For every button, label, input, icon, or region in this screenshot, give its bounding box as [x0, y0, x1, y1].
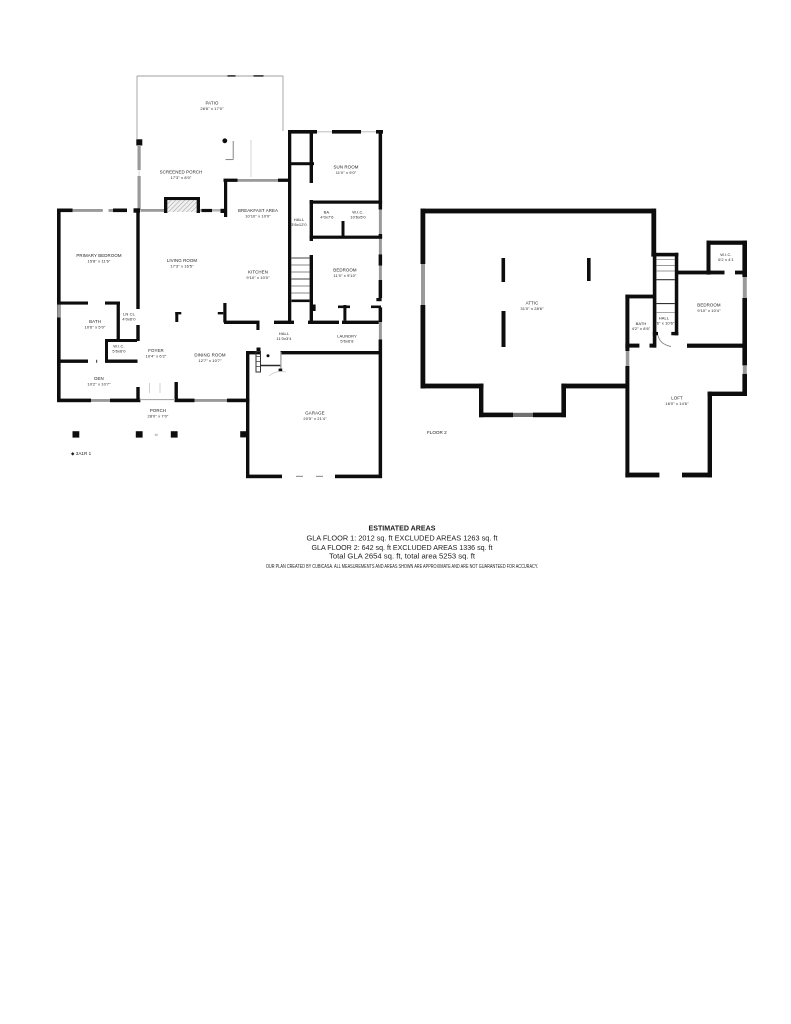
- svg-text:6'2 x 4'1: 6'2 x 4'1: [718, 257, 734, 262]
- svg-text:17'3" x 16'5": 17'3" x 16'5": [170, 264, 194, 269]
- svg-text:10'6" x 5'0": 10'6" x 5'0": [85, 325, 106, 330]
- svg-text:31'0" x 28'6": 31'0" x 28'6": [520, 306, 544, 311]
- svg-text:12'7" x 10'7": 12'7" x 10'7": [198, 358, 222, 363]
- svg-text:BEDROOM: BEDROOM: [697, 303, 721, 308]
- svg-text:DEN: DEN: [94, 376, 104, 381]
- svg-text:10'2" x 10'7": 10'2" x 10'7": [87, 382, 111, 387]
- svg-text:GLA FLOOR 1: 2012 sq. ft EXCLU: GLA FLOOR 1: 2012 sq. ft EXCLUDED AREAS …: [307, 536, 498, 543]
- svg-text:ESTIMATED AREAS: ESTIMATED AREAS: [369, 524, 436, 533]
- svg-text:PATIO: PATIO: [205, 101, 219, 106]
- svg-text:LOFT: LOFT: [671, 396, 683, 401]
- svg-text:PORCH: PORCH: [150, 408, 166, 413]
- svg-text:SCREENED PORCH: SCREENED PORCH: [160, 170, 203, 175]
- svg-text:28'0" x 7'0": 28'0" x 7'0": [148, 414, 169, 419]
- svg-text:GLA FLOOR 2: 642 sq. ft EXCLUD: GLA FLOOR 2: 642 sq. ft EXCLUDED AREAS 1…: [312, 545, 493, 552]
- svg-text:26'6" x 17'0": 26'6" x 17'0": [200, 106, 224, 111]
- svg-text:PRIMARY BEDROOM: PRIMARY BEDROOM: [76, 253, 121, 258]
- svg-text:Total GLA 2654 sq. ft, total a: Total GLA 2654 sq. ft, total area 5253 s…: [329, 554, 475, 561]
- svg-text:10'6x5'0: 10'6x5'0: [350, 215, 366, 220]
- svg-text:OUR PLAN CREATED BY CUBICASA.: OUR PLAN CREATED BY CUBICASA. ALL MEASUR…: [266, 564, 538, 570]
- svg-text:10'4" x 6'2": 10'4" x 6'2": [146, 354, 167, 359]
- svg-text:11'0x3'4: 11'0x3'4: [276, 336, 292, 341]
- svg-text:KITCHEN: KITCHEN: [248, 270, 268, 275]
- svg-text:BATH: BATH: [89, 319, 101, 324]
- svg-text:16'0" x 14'6": 16'0" x 14'6": [665, 401, 689, 406]
- svg-text:DINING ROOM: DINING ROOM: [194, 353, 226, 358]
- svg-text:17'3" x 8'0": 17'3" x 8'0": [171, 175, 192, 180]
- svg-text:4'0x6'0: 4'0x6'0: [122, 317, 136, 322]
- svg-text:3'6x12'0: 3'6x12'0: [291, 222, 307, 227]
- svg-text:5'6x6'8: 5'6x6'8: [340, 339, 354, 344]
- svg-text:BEDROOM: BEDROOM: [333, 268, 357, 273]
- svg-text:9'10" x 10'4": 9'10" x 10'4": [697, 308, 721, 313]
- svg-text:FOYER: FOYER: [148, 348, 164, 353]
- svg-text:9'10" x 10'0": 9'10" x 10'0": [246, 275, 270, 280]
- svg-text:LIVING ROOM: LIVING ROOM: [167, 258, 198, 263]
- svg-text:ATTIC: ATTIC: [526, 301, 539, 306]
- svg-text:4'2" x 8'6": 4'2" x 8'6": [632, 326, 651, 331]
- svg-text:3'6" x 10'6": 3'6" x 10'6": [654, 321, 675, 326]
- svg-text:5'6x6'0: 5'6x6'0: [112, 349, 126, 354]
- svg-text:FLOOR 2: FLOOR 2: [427, 430, 447, 435]
- svg-text:SUN ROOM: SUN ROOM: [334, 165, 359, 170]
- svg-text:◆ 3A1R 1: ◆ 3A1R 1: [71, 451, 92, 456]
- svg-text:4'0x7'6: 4'0x7'6: [320, 215, 334, 220]
- svg-text:20'5" x 21'4": 20'5" x 21'4": [303, 416, 327, 421]
- svg-text:11'0" x 9'0": 11'0" x 9'0": [336, 170, 357, 175]
- svg-text:10'10" x 10'0": 10'10" x 10'0": [245, 214, 271, 219]
- svg-text:11'0" x 9'10": 11'0" x 9'10": [334, 273, 357, 278]
- svg-text:BREAKFAST AREA: BREAKFAST AREA: [238, 208, 278, 213]
- svg-text:GARAGE: GARAGE: [305, 411, 324, 416]
- svg-text:15'8" x 11'6": 15'8" x 11'6": [88, 259, 111, 264]
